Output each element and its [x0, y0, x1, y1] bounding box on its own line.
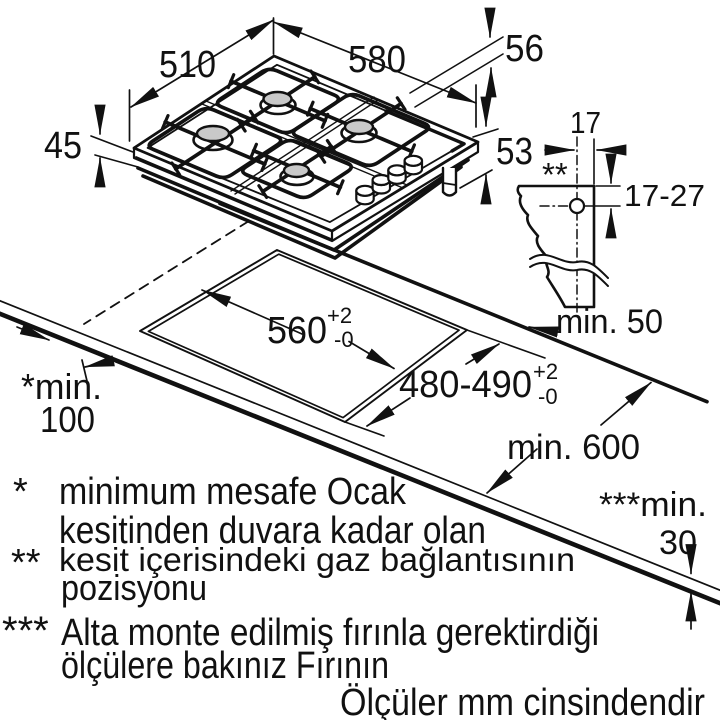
svg-text:45: 45: [44, 125, 82, 167]
svg-text:ölçülere bakınız Fırının: ölçülere bakınız Fırının: [61, 645, 389, 687]
svg-text:min. 50: min. 50: [556, 303, 663, 341]
svg-text:pozisyonu: pozisyonu: [61, 567, 207, 608]
svg-text:510: 510: [159, 44, 216, 86]
svg-text:***: ***: [2, 609, 49, 653]
svg-text:**: **: [542, 156, 568, 193]
svg-text:Ölçüler mm cinsindendir: Ölçüler mm cinsindendir: [340, 682, 705, 720]
svg-text:***min.: ***min.: [599, 486, 707, 524]
svg-text:-0: -0: [538, 384, 558, 409]
svg-text:-0: -0: [334, 327, 354, 352]
svg-text:+2: +2: [327, 303, 352, 328]
svg-text:53: 53: [496, 131, 533, 173]
svg-text:17: 17: [570, 105, 601, 140]
svg-text:minimum mesafe Ocak: minimum mesafe Ocak: [59, 471, 407, 513]
svg-text:56: 56: [505, 28, 544, 70]
svg-text:**: **: [11, 542, 41, 584]
svg-text:+2: +2: [533, 359, 558, 384]
svg-text:17-27: 17-27: [624, 178, 705, 213]
svg-text:100: 100: [40, 399, 95, 440]
svg-text:580: 580: [348, 39, 406, 81]
svg-text:480-490: 480-490: [399, 364, 532, 406]
svg-text:min. 600: min. 600: [507, 428, 640, 467]
svg-text:*: *: [13, 471, 28, 513]
svg-text:30: 30: [659, 524, 697, 562]
svg-text:560: 560: [267, 310, 327, 352]
